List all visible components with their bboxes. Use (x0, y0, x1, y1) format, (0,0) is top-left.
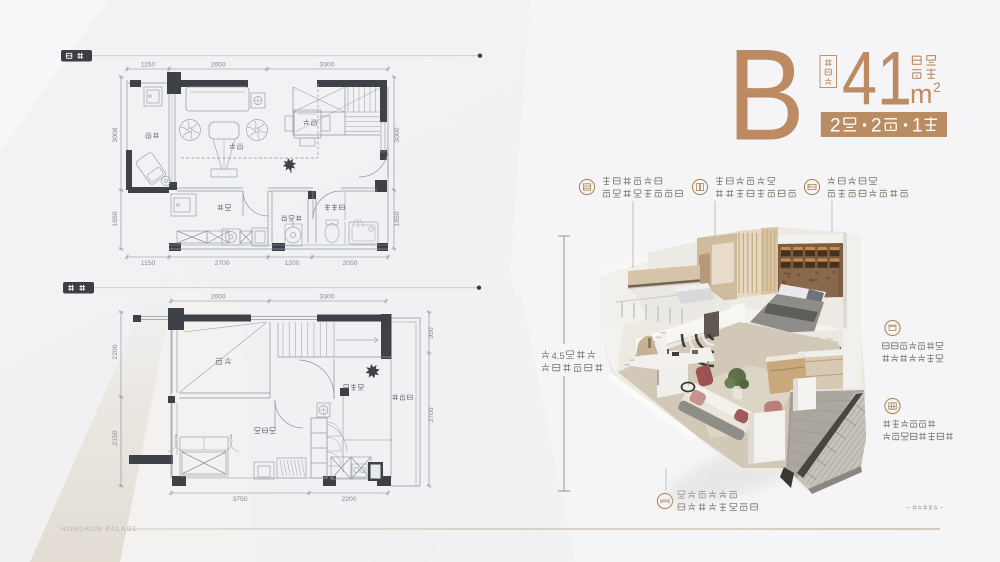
svg-text:1150: 1150 (141, 260, 156, 267)
svg-text:41: 41 (842, 37, 912, 122)
svg-text:3750: 3750 (232, 496, 247, 503)
svg-text:1650: 1650 (394, 211, 401, 226)
svg-text:3300: 3300 (319, 62, 334, 69)
svg-text:2200: 2200 (112, 344, 119, 359)
svg-text:1200: 1200 (284, 260, 299, 267)
svg-text:4.5: 4.5 (552, 351, 565, 362)
svg-text:2650: 2650 (210, 62, 225, 69)
svg-text:2700: 2700 (214, 260, 229, 267)
svg-text:HONGKUN PALACE: HONGKUN PALACE (61, 526, 138, 533)
svg-text:B: B (727, 22, 805, 168)
svg-text:3700: 3700 (428, 407, 435, 422)
svg-text:3000: 3000 (394, 127, 401, 142)
svg-text:2: 2 (933, 79, 941, 95)
svg-text:2150: 2150 (112, 430, 119, 445)
svg-text:2200: 2200 (341, 496, 356, 503)
svg-text:2650: 2650 (210, 294, 225, 301)
svg-text:1: 1 (912, 116, 923, 137)
svg-text:3008: 3008 (112, 127, 119, 142)
svg-text:m: m (910, 79, 933, 109)
svg-text:1150: 1150 (141, 62, 156, 69)
svg-text:2050: 2050 (342, 260, 357, 267)
svg-text:3300: 3300 (319, 294, 334, 301)
svg-text:1650: 1650 (112, 211, 119, 226)
svg-text:950: 950 (428, 327, 435, 339)
svg-text:2: 2 (871, 116, 882, 137)
svg-text:2: 2 (830, 116, 841, 137)
